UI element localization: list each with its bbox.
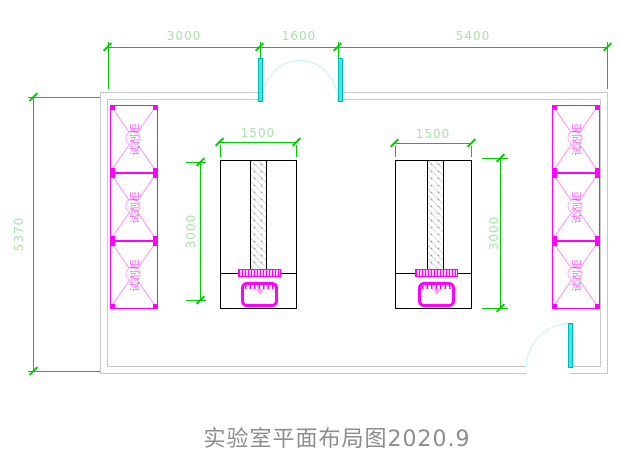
extension-line <box>220 145 221 157</box>
reagent-cabinet: 试剂柜 <box>552 173 600 241</box>
cabinet-label: 试剂柜 <box>569 123 584 156</box>
room-wall-inner <box>107 99 601 367</box>
extension-line <box>108 42 109 89</box>
extension-line <box>186 162 206 163</box>
extension-line <box>471 146 472 157</box>
extension-line <box>482 308 508 309</box>
dimension-line <box>33 97 34 371</box>
drawing-title: 实验室平面布局图2020.9 <box>204 421 471 453</box>
extension-line <box>186 300 206 301</box>
dimension-text: 1500 <box>241 126 276 140</box>
dimension-line <box>395 143 472 144</box>
lab-bench-left <box>220 160 297 309</box>
door-swing-arc <box>300 60 338 100</box>
sink-hatch-bar <box>238 269 281 277</box>
extension-line <box>607 42 608 89</box>
reagent-cabinet: 试剂柜 <box>552 105 600 173</box>
sink-hatch-bar <box>415 269 458 277</box>
dimension-text: 3000 <box>167 29 202 43</box>
cabinet-label: 试剂柜 <box>127 123 142 156</box>
extension-line <box>395 146 396 157</box>
cabinet-label: 试剂柜 <box>569 191 584 224</box>
bench-center-hatch <box>427 161 444 273</box>
sink-symbol <box>418 282 455 307</box>
dimension-text: 3000 <box>184 214 198 249</box>
cabinet-label: 试剂柜 <box>127 191 142 224</box>
cabinet-label: 试剂柜 <box>569 259 584 292</box>
extension-line <box>28 371 100 372</box>
extension-line <box>28 97 100 98</box>
extension-line <box>296 145 297 157</box>
reagent-cabinet: 试剂柜 <box>110 173 158 241</box>
dimension-line <box>200 162 201 300</box>
door-swing-arc <box>262 60 300 100</box>
reagent-cabinet: 试剂柜 <box>552 241 600 309</box>
reagent-cabinet: 试剂柜 <box>110 105 158 173</box>
floor-plan-canvas: 试剂柜 试剂柜 试剂柜 试剂柜 试剂柜 试剂柜 <box>0 0 619 469</box>
dimension-text: 5400 <box>456 29 491 43</box>
dimension-text: 3000 <box>487 216 501 251</box>
dimension-text: 5370 <box>12 217 26 252</box>
dimension-text: 1500 <box>416 127 451 141</box>
dimension-line <box>220 142 297 143</box>
cabinet-label: 试剂柜 <box>127 259 142 292</box>
reagent-cabinet: 试剂柜 <box>110 241 158 309</box>
door-leaf <box>338 58 343 102</box>
bench-center-hatch <box>250 161 267 273</box>
door-leaf <box>568 323 573 368</box>
door-leaf <box>258 58 263 102</box>
dimension-line <box>108 47 608 48</box>
sink-symbol <box>241 282 278 307</box>
dimension-text: 1600 <box>282 29 317 43</box>
lab-bench-right <box>395 160 472 309</box>
extension-line <box>482 158 508 159</box>
